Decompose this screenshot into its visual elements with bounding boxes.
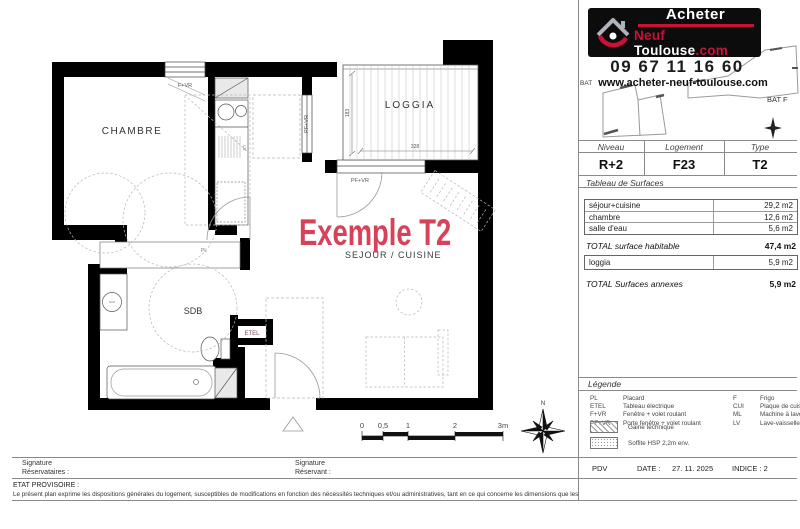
type-value: T2 [730, 157, 790, 172]
kitchen-unit [215, 78, 248, 225]
dim-width: 328 [411, 144, 420, 150]
north-label: N [541, 401, 545, 407]
legend-abbr: F+VR [590, 411, 623, 419]
soffite-label: Soffite HSP 2,2m env. [628, 440, 689, 447]
rule [12, 500, 797, 501]
etat-provisoire-title: ETAT PROVISOIRE : [13, 482, 79, 489]
annex-label: loggia [585, 258, 713, 267]
legend-list: PL Placard F Frigo ETEL Tableau électriq… [590, 395, 800, 428]
legend-desc: Plaque de cuisson [760, 403, 800, 411]
floor-plan-drawing: 0 0,5 1 2 3m N CHAMBRE LOGGIA SDB F+VR P [0, 0, 578, 455]
logo-word-toulouse: Toulouse [634, 43, 695, 58]
logo-word-acheter: Acheter [666, 7, 725, 23]
date-value: 27. 11. 2025 [672, 464, 713, 473]
label-pfvr: PF+VR [351, 178, 369, 184]
bat-f-label: BAT F [767, 95, 788, 104]
label-pfvr-vertical: PF+VR [304, 115, 310, 133]
signature-label: Signature [295, 459, 331, 468]
plan-subtitle: SEJOUR / CUISINE [345, 250, 442, 260]
legend-abbr: ML [733, 411, 760, 419]
scale-tick: 0 [360, 421, 364, 430]
scale-tick: 2 [453, 421, 457, 430]
scale-tick: 3m [498, 421, 508, 430]
date-label: DATE : [637, 464, 661, 473]
label-etel: ETEL [244, 331, 260, 337]
cooktop-burner-icon [218, 104, 234, 120]
legend-title: Légende [588, 379, 621, 389]
gaine-technique-label: Gaine technique [628, 424, 674, 431]
surface-value: 29,2 m2 [713, 200, 797, 211]
scale-bar: 0 0,5 1 2 3m [360, 421, 508, 441]
gaine-technique-swatch [590, 421, 618, 433]
rule [578, 152, 797, 153]
dim-height: 183 [345, 109, 351, 118]
total-habitable-row: TOTAL surface habitable 47,4 m2 [586, 241, 796, 251]
room-label-sdb: SDB [184, 306, 203, 316]
indice-label: INDICE : 2 [732, 464, 768, 473]
rule [578, 377, 797, 378]
bathtub-drain [194, 380, 199, 385]
logement-value: F23 [654, 157, 714, 172]
total-habitable-label: TOTAL surface habitable [586, 241, 680, 251]
legend-desc: Tableau électrique [623, 403, 733, 411]
legend-item: PF+VR Porte fenêtre + volet roulant LV L… [590, 420, 800, 428]
plan-title: Exemple T2 [299, 215, 451, 251]
table-row: salle d'eau 5,6 m2 [585, 222, 797, 234]
label-pl: PL [201, 248, 208, 254]
legend-desc: Placard [623, 395, 733, 403]
legend-abbr: CUI [733, 403, 760, 411]
surfaces-table: séjour+cuisine 29,2 m2 chambre 12,6 m2 s… [584, 199, 798, 235]
logo-word-neuf: Neuf [634, 28, 665, 43]
surface-label: salle d'eau [585, 224, 713, 233]
logo-divider-bar [638, 24, 754, 27]
surface-value: 12,6 m2 [713, 212, 797, 223]
cooktop-burner-icon [236, 106, 247, 117]
soffite-swatch [590, 437, 618, 449]
signature-reservataires[interactable]: Signature Réservataires : [22, 459, 69, 477]
compass-rose-icon: N [521, 401, 565, 453]
room-label-loggia: LOGGIA [385, 100, 435, 111]
total-habitable-value: 47,4 m2 [765, 241, 796, 251]
label-lv: LV [242, 145, 247, 150]
toilet-bowl [201, 337, 219, 361]
legend-abbr: F [733, 395, 760, 403]
surface-value: 5,6 m2 [713, 223, 797, 234]
legend-desc: Lave-vaisselle [760, 420, 800, 428]
fridge-outline [217, 182, 245, 222]
table-row: séjour+cuisine 29,2 m2 [585, 200, 797, 211]
logo-word-dotcom: .com [695, 43, 728, 58]
entrance-triangle-marker [283, 417, 303, 431]
rule [578, 175, 797, 176]
bathroom-fixtures [100, 242, 240, 399]
legend-abbr: PL [590, 395, 623, 403]
total-annex-value: 5,9 m2 [770, 279, 796, 289]
plan-sheet: 0 0,5 1 2 3m N CHAMBRE LOGGIA SDB F+VR P [0, 0, 800, 529]
table-row: chambre 12,6 m2 [585, 211, 797, 223]
toilet-tank [221, 339, 230, 359]
rule [12, 478, 797, 479]
legend-item: F+VR Fenêtre + volet roulant ML Machine … [590, 411, 800, 419]
total-annex-row: TOTAL Surfaces annexes 5,9 m2 [586, 279, 796, 289]
annex-table: loggia 5,9 m2 [584, 255, 798, 270]
legend-desc: Frigo [760, 395, 800, 403]
scale-tick: 1 [406, 421, 410, 430]
window-swing-lines [168, 78, 205, 101]
logo-house-icon [592, 12, 634, 54]
scale-tick: 0,5 [378, 421, 388, 430]
surfaces-section-title: Tableau de Surfaces [586, 178, 664, 188]
surface-label: chambre [585, 213, 713, 222]
table-row: loggia 5,9 m2 [585, 256, 797, 269]
reservataires-label: Réservataires : [22, 468, 69, 477]
total-annex-label: TOTAL Surfaces annexes [586, 279, 683, 289]
legend-item: ETEL Tableau électrique CUI Plaque de cu… [590, 403, 800, 411]
phone-number[interactable]: 09 67 11 16 60 [584, 57, 770, 77]
legend-abbr: LV [733, 420, 760, 428]
disclaimer-text: Le présent plan exprime les dispositions… [13, 491, 579, 498]
room-label-chambre: CHAMBRE [102, 126, 163, 137]
rule [578, 390, 797, 391]
mini-compass-icon [764, 117, 782, 139]
placard-closet [100, 242, 240, 268]
legend-abbr: ETEL [590, 403, 623, 411]
agency-logo[interactable]: Acheter Neuf Toulouse.com [588, 8, 761, 57]
signature-label: Signature [22, 459, 69, 468]
annex-value: 5,9 m2 [713, 256, 797, 269]
reservant-label: Réservant : [295, 468, 331, 477]
niveau-value: R+2 [581, 157, 641, 172]
pdv-label: PDV [592, 464, 607, 473]
label-fvr: F+VR [178, 83, 192, 89]
rule [12, 457, 797, 458]
legend-desc: Machine à laver [760, 411, 800, 419]
signature-reservant[interactable]: Signature Réservant : [295, 459, 331, 477]
legend-item: PL Placard F Frigo [590, 395, 800, 403]
website-link[interactable]: www.acheter-neuf-toulouse.com [577, 77, 789, 89]
surface-label: séjour+cuisine [585, 201, 713, 210]
legend-desc: Fenêtre + volet roulant [623, 411, 733, 419]
